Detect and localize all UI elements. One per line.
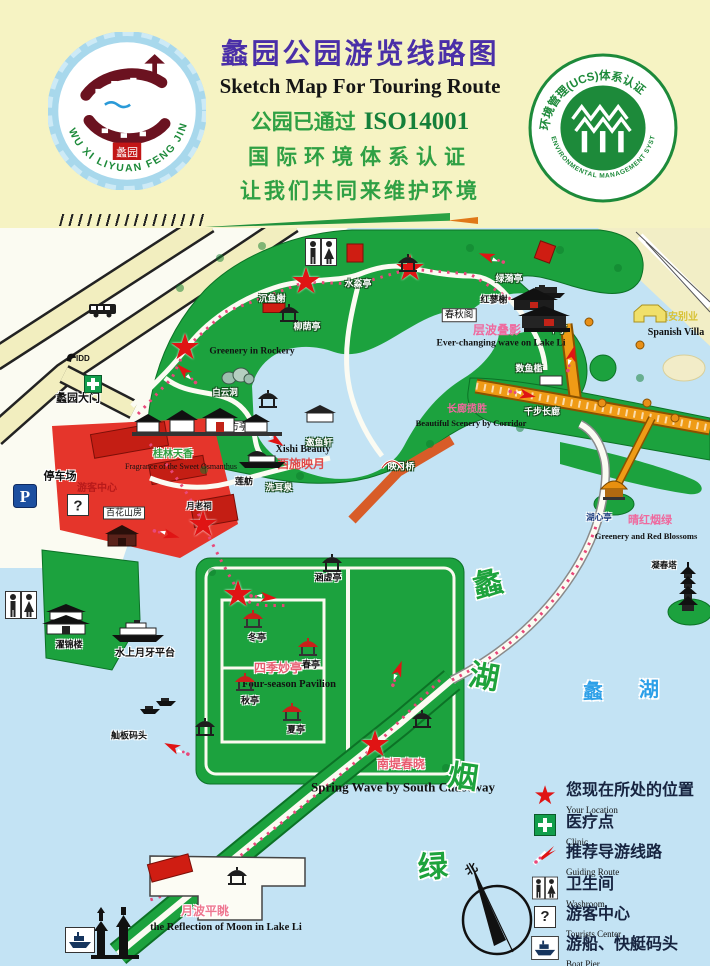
legend-cn: 推荐导游线路 xyxy=(566,844,662,861)
map-label: Beautiful Scenery by Corridor xyxy=(416,419,527,428)
legend-cn: 医疗点 xyxy=(566,814,614,831)
legend-cn: 游客中心 xyxy=(566,906,630,923)
legend-boat-pier: 游船、快艇码头 Boat Pier xyxy=(528,936,678,966)
touring-route-map-page: 蠡园 WU XI LIYUAN FENG JING QU 蠡园公园游览线路图 S… xyxy=(0,0,710,966)
map-label: 凝春塔 xyxy=(651,561,677,570)
map-label: Spanish Villa xyxy=(648,328,704,338)
ucs-certification-logo: 环境管理(UCS)体系认证 ENVIRONMENTAL MANAGEMENT S… xyxy=(527,52,679,204)
idd-icon: IDD xyxy=(63,348,97,366)
clinic-icon xyxy=(84,375,102,393)
map-label: 长廊揽胜 xyxy=(447,405,487,415)
decorative-character: 烟 xyxy=(446,761,480,795)
pavilion-icon xyxy=(193,718,217,738)
map-label: 洗耳泉 xyxy=(265,484,292,493)
route-arrow-icon xyxy=(506,383,539,405)
map-label: 数鱼槛 xyxy=(515,365,542,374)
park-logo: 蠡园 WU XI LIYUAN FENG JING QU xyxy=(48,32,206,190)
orange-tip xyxy=(448,217,478,224)
clinic-cross-icon xyxy=(534,814,556,836)
iso-line: 公园已通过ISO14001 xyxy=(192,109,528,134)
location-star-icon: ★ xyxy=(290,263,322,299)
dot-icon xyxy=(670,413,680,423)
dot-icon xyxy=(597,398,607,408)
pavilion-icon xyxy=(396,254,420,274)
pavred-icon xyxy=(280,703,304,723)
map-label: 水淼亭 xyxy=(344,280,371,289)
legend-cn: 卫生间 xyxy=(566,876,614,893)
map-label: 白云洞 xyxy=(212,388,238,397)
boat-icon xyxy=(528,936,562,960)
map-label: 桂林天香 xyxy=(153,450,193,460)
header-titles: 蠡园公园游览线路图 Sketch Map For Touring Route 公… xyxy=(192,40,528,202)
cert-line-2: 国际环境体系认证 xyxy=(192,147,528,168)
location-star-icon: ★ xyxy=(359,726,391,762)
cert-prefix: 公园已通过 xyxy=(251,111,356,134)
hatch-marks xyxy=(55,214,205,226)
route-arrow-icon xyxy=(384,657,409,691)
pavred-icon xyxy=(296,638,320,658)
pavilion-icon xyxy=(320,554,344,574)
pavilion-icon xyxy=(225,867,249,887)
map-label: Greenery in Rockery xyxy=(209,347,294,357)
parking-icon: P xyxy=(13,484,37,508)
location-star-icon: ★ xyxy=(169,329,201,365)
map-label: 舢板码头 xyxy=(111,732,147,741)
seal-text: 蠡园 xyxy=(116,145,138,159)
green-wedge xyxy=(205,213,450,227)
decorative-character: 蠡 xyxy=(583,682,603,702)
decorative-character: 蠡 xyxy=(470,567,506,603)
map-label: 蠡园大门 xyxy=(56,394,100,405)
map-label: 春亭 xyxy=(302,661,320,670)
pavred-icon xyxy=(241,610,265,630)
question-icon: ? xyxy=(534,906,556,928)
map-label: 夏亭 xyxy=(287,726,305,735)
cert-line-3: 让我们共同来维护环境 xyxy=(192,181,528,202)
islet-icon xyxy=(662,354,706,382)
map-label: 春秋阁 xyxy=(442,308,477,322)
washroom-icon xyxy=(528,876,562,900)
redrect-icon xyxy=(533,240,557,265)
map-label: 游客中心 xyxy=(77,484,117,494)
header-separator xyxy=(0,213,710,228)
svg-text:?: ? xyxy=(73,498,82,515)
villa-icon xyxy=(630,302,670,328)
map-label: 晴红烟绿 xyxy=(628,516,672,527)
map-label: Greenery and Red Blossoms xyxy=(595,532,698,541)
dot-icon xyxy=(584,317,594,327)
map-label: 莲舫 xyxy=(235,478,253,487)
map-label: 邀鱼轩 xyxy=(305,439,332,448)
boat-icon xyxy=(155,697,177,707)
page-title: 蠡园公园游览线路图 xyxy=(192,40,528,68)
boatbldg-icon xyxy=(237,448,287,470)
map-label: 停车场 xyxy=(44,472,77,483)
map-label: Fragrance of the Sweet Osmanthus xyxy=(125,463,237,471)
legend-cn: 您现在所处的位置 xyxy=(566,782,694,799)
map-label: the Reflection of Moon in Lake Li xyxy=(150,923,302,934)
pagoda-icon xyxy=(677,562,699,614)
rock-icon xyxy=(221,367,255,385)
legend-your-location: ★ 您现在所处的位置 Your Location xyxy=(528,782,694,818)
redrect-icon xyxy=(146,853,194,884)
redrect-icon xyxy=(346,243,364,263)
dot-icon xyxy=(642,398,652,408)
map-label: 秋亭 xyxy=(241,697,259,706)
bldg2-icon xyxy=(40,602,92,638)
location-star-icon: ★ xyxy=(187,506,219,542)
towers-icon xyxy=(89,901,141,959)
route-arrow-icon xyxy=(475,245,509,270)
pavorange-icon xyxy=(599,477,629,503)
legend-cn: 游船、快艇码头 xyxy=(566,936,678,953)
pavilion-icon xyxy=(277,304,301,324)
map-label: 月波平眺 xyxy=(181,905,229,917)
question-icon: ? xyxy=(67,494,89,516)
building-icon xyxy=(303,404,337,424)
svg-text:P: P xyxy=(20,487,30,506)
map-label: 千步长廊 xyxy=(524,408,560,417)
map-label: Ever-changing wave on Lake Li xyxy=(437,339,566,349)
bus-icon xyxy=(88,302,118,318)
ship-icon xyxy=(110,619,166,645)
svg-text:IDD: IDD xyxy=(76,354,90,363)
decorative-character: 湖 xyxy=(639,680,659,700)
page-title-en: Sketch Map For Touring Route xyxy=(192,76,528,97)
map-label: 涵虚亭 xyxy=(314,574,341,583)
gate-icon xyxy=(130,404,290,448)
star-icon: ★ xyxy=(533,782,556,808)
route-arrow-icon xyxy=(528,844,562,866)
map-label: 湖心亭 xyxy=(586,513,612,522)
iso-code: ISO14001 xyxy=(364,108,470,135)
legend-en: Boat Pier xyxy=(566,959,600,966)
map-label: 四季妙亭 xyxy=(254,662,302,674)
map-label: 濯锦楼 xyxy=(55,641,82,650)
bigbldg-icon xyxy=(504,282,576,334)
hall-icon xyxy=(103,523,141,549)
washroom-icon xyxy=(305,238,337,266)
route-arrow-icon xyxy=(160,735,194,762)
map-label: 水上月牙平台 xyxy=(115,649,175,659)
washroom-icon xyxy=(5,591,37,619)
pavred-icon xyxy=(233,673,257,693)
moonbridge-icon xyxy=(381,458,403,470)
header: 蠡园 WU XI LIYUAN FENG JING QU 蠡园公园游览线路图 S… xyxy=(0,0,710,228)
legend-guiding-route: 推荐导游线路 Guiding Route xyxy=(528,844,662,880)
route-arrow-icon xyxy=(149,522,182,545)
decorative-character: 湖 xyxy=(467,661,502,696)
pavilion-icon xyxy=(410,710,434,730)
decorative-character: 绿 xyxy=(417,852,449,884)
dot-icon xyxy=(635,340,645,350)
route-arrow-icon xyxy=(247,588,278,607)
park-map: 北 蠡园大门停车场游客中心百花山房Greenery in Rockery沉鱼榭水… xyxy=(0,228,710,966)
map-label: 冬亭 xyxy=(248,634,266,643)
map-label: 百花山房 xyxy=(103,507,145,520)
boatbox-icon xyxy=(65,927,95,953)
